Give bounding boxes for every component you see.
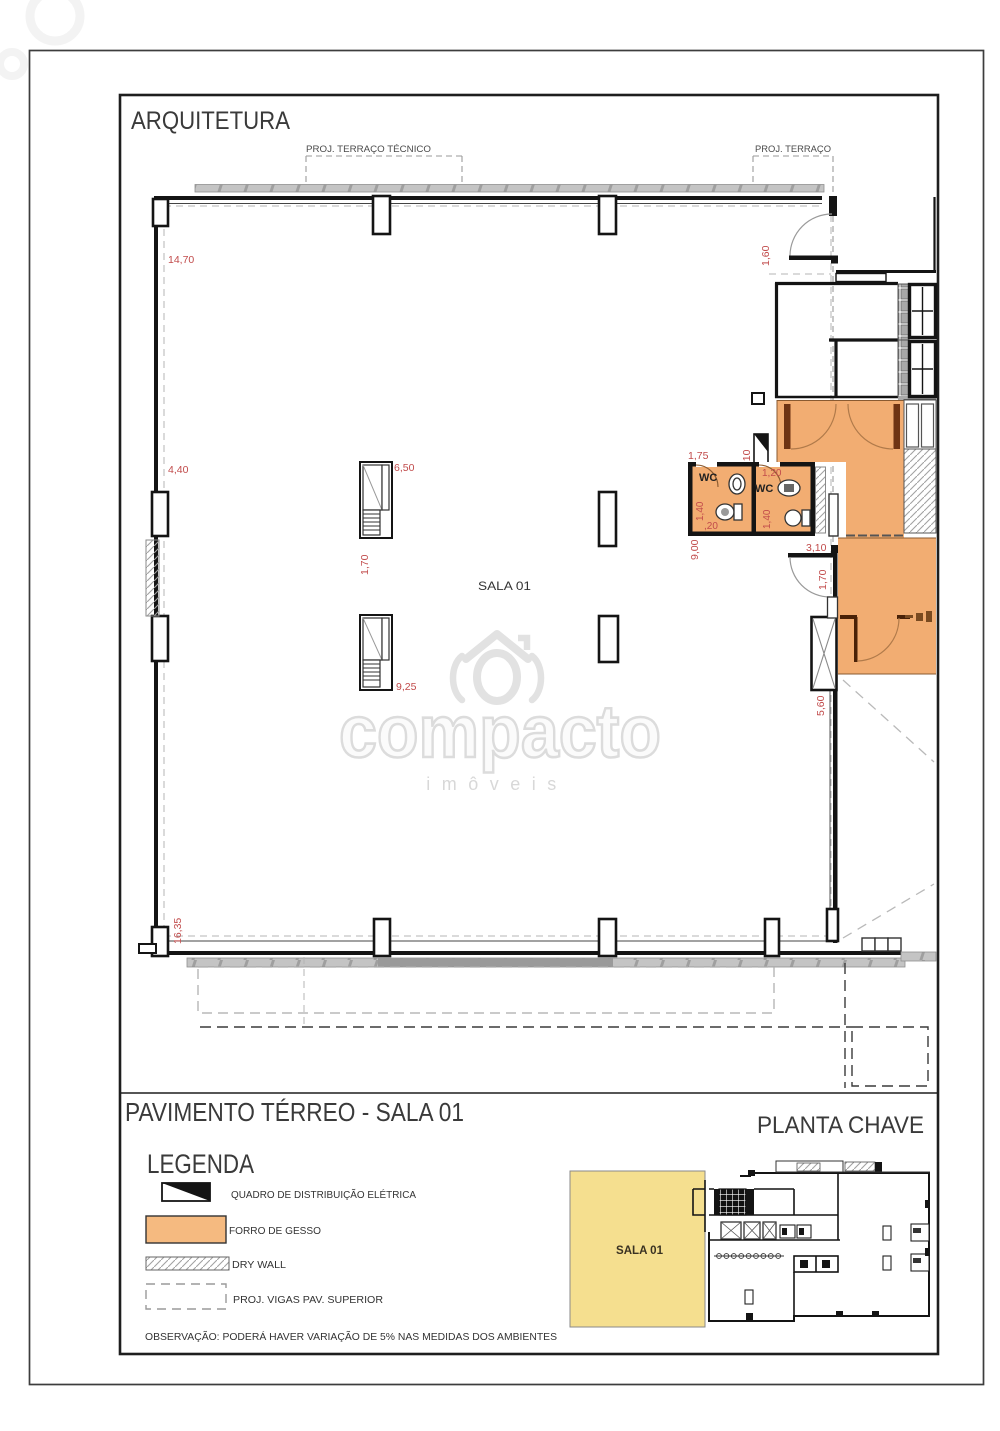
svg-text:1,70: 1,70 [359,554,371,575]
svg-text:LEGENDA: LEGENDA [147,1149,254,1179]
svg-text:DRY WALL: DRY WALL [232,1260,286,1271]
svg-text:imôveis: imôveis [426,774,568,794]
svg-text:SALA 01: SALA 01 [616,1243,663,1257]
svg-text:4,40: 4,40 [168,464,189,476]
svg-text:PROJ. VIGAS PAV. SUPERIOR: PROJ. VIGAS PAV. SUPERIOR [233,1295,383,1306]
svg-text:1,75: 1,75 [688,450,709,462]
svg-text:16,35: 16,35 [172,918,184,944]
svg-text:WC: WC [755,483,773,495]
svg-text:1,20: 1,20 [762,468,782,479]
svg-text:compacto: compacto [339,690,661,773]
svg-text:5,60: 5,60 [815,695,827,716]
svg-text:3,10: 3,10 [806,542,827,554]
svg-text:OBSERVAÇÃO: PODERÁ HAVER VARIA: OBSERVAÇÃO: PODERÁ HAVER VARIAÇÃO DE 5% … [145,1330,557,1343]
svg-text:PAVIMENTO TÉRREO - SALA 01: PAVIMENTO TÉRREO - SALA 01 [125,1097,464,1127]
svg-text:6,50: 6,50 [394,462,415,474]
svg-text:1,40: 1,40 [762,509,773,529]
svg-text:FORRO DE GESSO: FORRO DE GESSO [229,1226,321,1237]
svg-text:14,70: 14,70 [168,254,194,266]
svg-text:1,60: 1,60 [760,245,772,266]
svg-text:1,70: 1,70 [817,569,829,590]
svg-text:SALA 01: SALA 01 [478,581,531,593]
svg-text:ARQUITETURA: ARQUITETURA [131,107,290,135]
svg-text:9,25: 9,25 [396,681,417,693]
svg-text:WC: WC [699,472,717,484]
svg-text:PLANTA CHAVE: PLANTA CHAVE [757,1112,924,1139]
svg-text:QUADRO DE DISTRIBUIÇÃO ELÉTRIC: QUADRO DE DISTRIBUIÇÃO ELÉTRICA [231,1188,416,1201]
svg-text:1,40: 1,40 [695,501,706,521]
svg-text:PROJ. TERRAÇO TÉCNICO: PROJ. TERRAÇO TÉCNICO [306,144,431,155]
svg-text:PROJ. TERRAÇO: PROJ. TERRAÇO [755,144,831,155]
svg-text:9,00: 9,00 [689,539,701,560]
svg-text:,20: ,20 [704,521,718,532]
